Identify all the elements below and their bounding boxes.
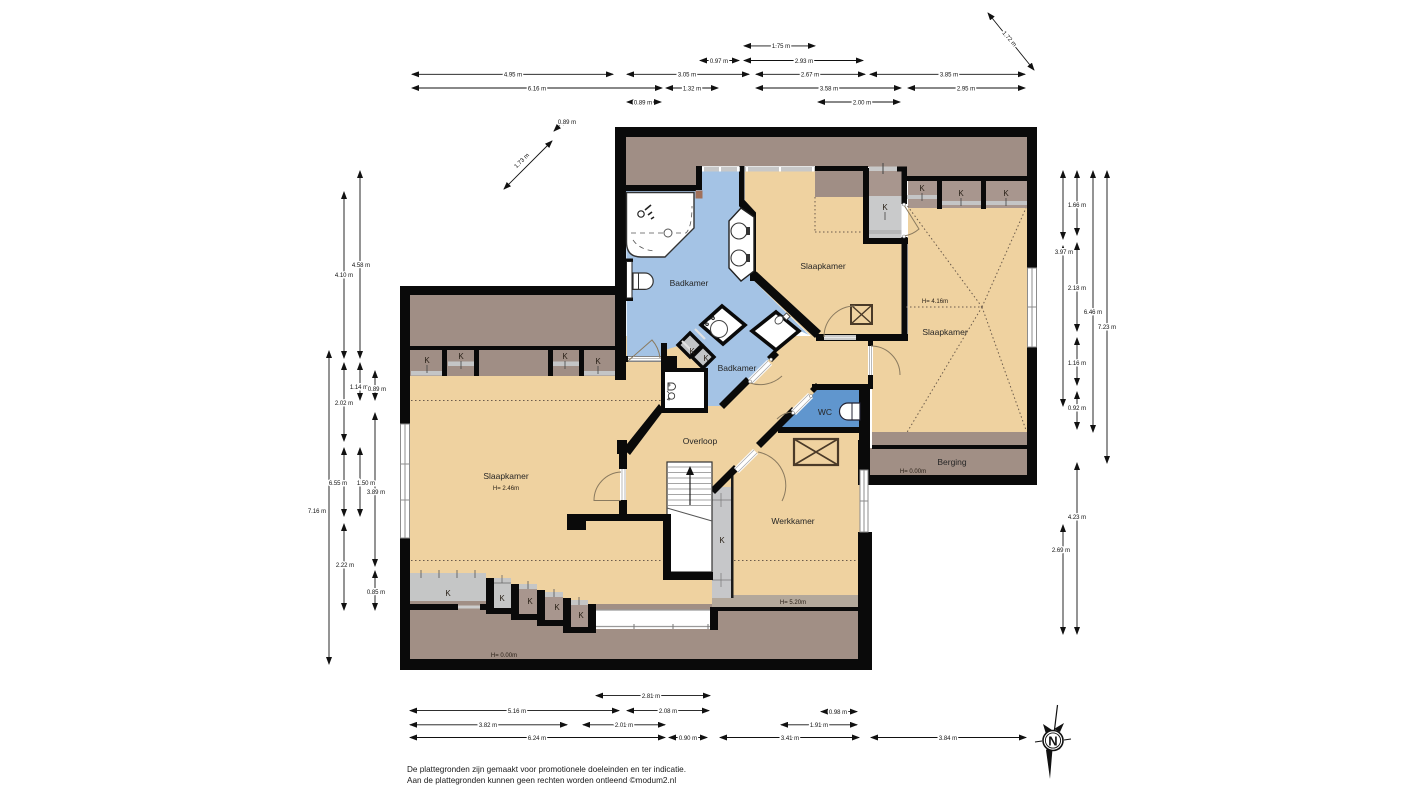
svg-text:3.84 m: 3.84 m [939, 736, 957, 742]
svg-text:3.82 m: 3.82 m [479, 723, 497, 729]
svg-text:1.50 m: 1.50 m [357, 481, 375, 487]
svg-text:0.90 m: 0.90 m [679, 736, 697, 742]
svg-text:2.22 m: 2.22 m [336, 563, 354, 569]
svg-text:2.95 m: 2.95 m [957, 86, 975, 92]
svg-text:H= 2.46m: H= 2.46m [493, 486, 519, 492]
svg-text:3.89 m: 3.89 m [367, 490, 385, 496]
svg-text:1.16 m: 1.16 m [1068, 361, 1086, 367]
svg-text:2.08 m: 2.08 m [659, 709, 677, 715]
svg-text:2.00 m: 2.00 m [853, 100, 871, 106]
svg-text:4.58 m: 4.58 m [352, 263, 370, 269]
svg-text:Werkkamer: Werkkamer [771, 516, 814, 526]
svg-text:Berging: Berging [937, 457, 967, 467]
svg-text:De plattegronden zijn gemaakt: De plattegronden zijn gemaakt voor promo… [407, 765, 686, 774]
svg-text:3.05 m: 3.05 m [678, 73, 696, 79]
svg-text:1.75 m: 1.75 m [772, 44, 790, 50]
svg-text:0.89 m: 0.89 m [558, 120, 576, 126]
svg-text:2.18 m: 2.18 m [1068, 286, 1086, 292]
svg-text:0.98 m: 0.98 m [829, 710, 847, 716]
svg-text:K: K [595, 357, 601, 366]
svg-text:1.32 m: 1.32 m [683, 86, 701, 92]
svg-text:0.97 m: 0.97 m [710, 59, 728, 65]
svg-text:Slaapkamer: Slaapkamer [800, 261, 846, 271]
svg-text:Slaapkamer: Slaapkamer [922, 327, 968, 337]
svg-text:K: K [882, 203, 888, 212]
svg-text:3.41 m: 3.41 m [781, 736, 799, 742]
svg-text:0.89 m: 0.89 m [634, 100, 652, 106]
svg-text:6.55 m: 6.55 m [329, 481, 347, 487]
svg-text:0.92 m: 0.92 m [1068, 406, 1086, 412]
svg-text:H= 5.20m: H= 5.20m [780, 600, 806, 606]
svg-text:4.95 m: 4.95 m [504, 73, 522, 79]
svg-text:0.85 m: 0.85 m [367, 590, 385, 596]
svg-text:6.16 m: 6.16 m [528, 86, 546, 92]
svg-text:0.89 m: 0.89 m [368, 387, 386, 393]
svg-text:K: K [499, 594, 505, 603]
svg-text:6.46 m: 6.46 m [1084, 310, 1102, 316]
svg-text:N: N [1048, 734, 1057, 749]
svg-text:2.69 m: 2.69 m [1052, 548, 1070, 554]
svg-text:H= 0.00m: H= 0.00m [491, 653, 517, 659]
svg-text:4.10 m: 4.10 m [335, 273, 353, 279]
svg-text:2.93 m: 2.93 m [795, 59, 813, 65]
svg-text:K: K [958, 189, 964, 198]
svg-text:3.85 m: 3.85 m [940, 73, 958, 79]
svg-text:5.16 m: 5.16 m [508, 709, 526, 715]
svg-text:H= 0.00m: H= 0.00m [900, 469, 926, 475]
svg-text:K: K [527, 597, 533, 606]
svg-text:K: K [445, 589, 451, 598]
svg-text:K: K [458, 352, 464, 361]
svg-text:1.66 m: 1.66 m [1068, 203, 1086, 209]
svg-text:7.23 m: 7.23 m [1098, 325, 1116, 331]
svg-text:7.16 m: 7.16 m [308, 509, 326, 515]
svg-text:K: K [578, 611, 584, 620]
svg-text:K: K [689, 347, 695, 356]
svg-text:K: K [562, 352, 568, 361]
svg-text:K: K [703, 354, 709, 363]
svg-text:Badkamer: Badkamer [718, 363, 757, 373]
svg-text:Badkamer: Badkamer [670, 278, 709, 288]
svg-text:2.81 m: 2.81 m [642, 694, 660, 700]
svg-text:K: K [424, 356, 430, 365]
svg-text:1.91 m: 1.91 m [810, 723, 828, 729]
svg-text:6.24 m: 6.24 m [528, 736, 546, 742]
svg-text:K: K [1003, 189, 1009, 198]
svg-text:3.97 m: 3.97 m [1055, 250, 1073, 256]
svg-text:2.02 m: 2.02 m [335, 401, 353, 407]
svg-text:2.01 m: 2.01 m [615, 723, 633, 729]
svg-text:Slaapkamer: Slaapkamer [483, 471, 529, 481]
svg-text:K: K [554, 603, 560, 612]
svg-text:Aan de plattegronden kunnen ge: Aan de plattegronden kunnen geen rechten… [407, 776, 676, 785]
svg-text:H= 4.16m: H= 4.16m [922, 299, 948, 305]
svg-text:WC: WC [818, 407, 832, 417]
svg-text:2.67 m: 2.67 m [801, 73, 819, 79]
svg-text:K: K [919, 184, 925, 193]
svg-text:1.14 m: 1.14 m [350, 385, 368, 391]
svg-text:K: K [719, 536, 725, 545]
svg-text:4.23 m: 4.23 m [1068, 515, 1086, 521]
svg-text:Overloop: Overloop [683, 436, 718, 446]
svg-text:3.58 m: 3.58 m [820, 86, 838, 92]
